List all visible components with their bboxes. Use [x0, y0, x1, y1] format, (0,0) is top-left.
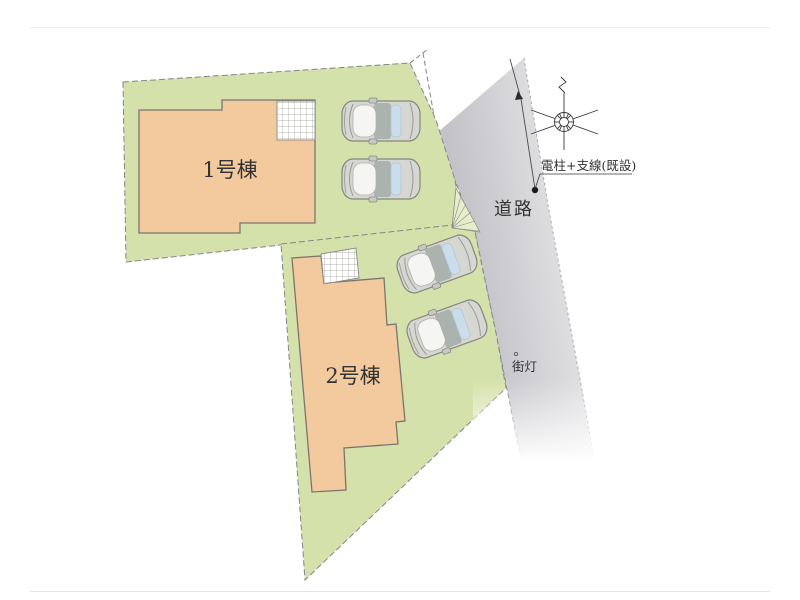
utility-pole-label: 電柱+支線(既設)	[541, 158, 636, 173]
road-label: 道路	[494, 199, 534, 220]
pole-symbol-squiggle	[559, 77, 566, 93]
utility-pole-icon	[531, 77, 598, 150]
car-top-view-icon	[342, 156, 420, 202]
car-top-view-icon	[342, 98, 420, 144]
utility-pole-callout: 電柱+支線(既設)	[535, 158, 636, 189]
street-light-label: 街灯	[512, 359, 537, 374]
site-plan-canvas: 1号棟 2号棟	[0, 0, 800, 600]
building-2-balcony-hatch	[321, 248, 359, 284]
plot-1-boundary-extension	[410, 49, 428, 63]
road-fade	[473, 378, 608, 473]
building-1-label: 1号棟	[202, 158, 257, 182]
site-plan: 1号棟 2号棟	[0, 0, 800, 600]
building-2-label: 2号棟	[325, 364, 380, 388]
building-1-balcony-hatch	[277, 101, 315, 140]
building-1: 1号棟	[139, 100, 315, 233]
